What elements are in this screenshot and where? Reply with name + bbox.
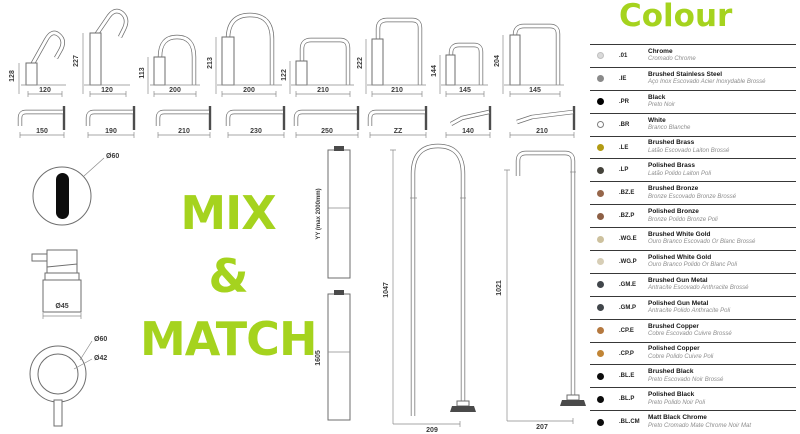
colour-finish-list: .01 Chrome Cromado Chrome .IE Brushed St… <box>590 44 796 433</box>
finish-subname: Cobre Polido Cuivre Poli <box>648 354 796 362</box>
finish-names: Polished Black Preto Polido Noir Poli <box>648 391 796 407</box>
finish-name: Brushed Bronze <box>648 185 796 193</box>
width-dim-label: 250 <box>321 128 333 135</box>
column-width-label: 209 <box>426 427 438 434</box>
finish-subname: Preto Cromado Mate Chrome Noir Mat <box>648 423 796 431</box>
riser-drawing <box>328 290 350 420</box>
width-dim-label: 120 <box>101 87 113 94</box>
wall-spout-fig-6: ZZ <box>362 104 430 140</box>
diameter-label: Ø60 <box>106 153 119 160</box>
finish-names: Polished Brass Latão Polido Laiton Poli <box>648 162 796 178</box>
spout-drawing <box>216 15 282 97</box>
sensor-slot <box>56 173 69 219</box>
finish-subname: Bronze Escovado Bronze Brossé <box>648 194 796 202</box>
finish-code: .WG.P <box>619 259 648 265</box>
column-width-label: 207 <box>536 424 548 431</box>
finish-name: Brushed Black <box>648 368 796 376</box>
colour-finish-row: .CP.E Brushed Copper Cobre Escovado Cuiv… <box>590 319 796 342</box>
colour-finish-row: .PR Black Preto Noir <box>590 90 796 113</box>
headline-line-3: MATCH <box>140 308 316 371</box>
width-dim-label: 210 <box>391 87 403 94</box>
colour-finish-row: .BR White Branco Blanche <box>590 113 796 136</box>
colour-finish-row: .BL.E Brushed Black Preto Escovado Noir … <box>590 364 796 387</box>
width-dim-label: 140 <box>462 128 474 135</box>
colour-finish-row: .IE Brushed Stainless Steel Aço Inox Esc… <box>590 67 796 90</box>
width-dim-label: ZZ <box>394 128 403 135</box>
width-dim-label: 230 <box>250 128 262 135</box>
finish-names: Brushed Black Preto Escovado Noir Brossé <box>648 368 796 384</box>
finish-code: .BL.E <box>619 373 648 379</box>
finish-names: Brushed Stainless Steel Aço Inox Escovad… <box>648 71 796 87</box>
finish-names: Brushed Gun Metal Antracite Escovado Ant… <box>648 277 796 293</box>
finish-names: Brushed Copper Cobre Escovado Cuivre Bro… <box>648 323 796 339</box>
finish-subname: Cromado Chrome <box>648 56 796 64</box>
finish-subname: Antracite Polido Anthracite Poli <box>648 308 796 316</box>
finish-names: Polished White Gold Ouro Branco Polido O… <box>648 254 796 270</box>
colour-finish-row: .WG.E Brushed White Gold Ouro Branco Esc… <box>590 227 796 250</box>
column-height-label: 1047 <box>383 282 390 298</box>
colour-finish-row: .BZ.E Brushed Bronze Bronze Escovado Bro… <box>590 181 796 204</box>
finish-subname: Ouro Branco Escovado Or Blanc Brossé <box>648 239 796 247</box>
inner-diameter-label: Ø42 <box>94 355 107 362</box>
finish-swatch-dot <box>597 75 604 82</box>
riser-drawing <box>328 146 350 278</box>
finish-swatch-dot <box>597 327 604 334</box>
finish-code: .LP <box>619 167 648 173</box>
finish-swatch-dot <box>597 98 604 105</box>
finish-name: Brushed Copper <box>648 323 796 331</box>
colour-panel: Colour .01 Chrome Cromado Chrome .IE Bru… <box>590 0 800 434</box>
finish-code: .GM.P <box>619 305 648 311</box>
riser-height-label: 1605 <box>315 350 322 366</box>
spout-fig-1: 128 120 <box>8 7 70 99</box>
finish-name: Polished White Gold <box>648 254 796 262</box>
mix-match-headline: MIX & MATCH <box>140 182 316 371</box>
diameter-label: Ø45 <box>55 303 68 310</box>
finish-code: .CP.E <box>619 328 648 334</box>
height-dim-label: 128 <box>9 70 16 82</box>
colour-finish-row: .WG.P Polished White Gold Ouro Branco Po… <box>590 250 796 273</box>
spout-fig-2: 227 120 <box>76 7 140 99</box>
finish-code: .PR <box>619 99 648 105</box>
height-dim-label: 144 <box>431 65 438 77</box>
sensor-drawing <box>33 158 104 225</box>
wall-spout-fig-4: 230 <box>220 104 288 140</box>
finish-swatch-dot <box>597 350 604 357</box>
finish-names: White Branco Blanche <box>648 117 796 133</box>
colour-finish-row: .LP Polished Brass Latão Polido Laiton P… <box>590 158 796 181</box>
finish-name: Polished Bronze <box>648 208 796 216</box>
finish-code: .CP.P <box>619 351 648 357</box>
colour-finish-row: .GM.P Polished Gun Metal Antracite Polid… <box>590 296 796 319</box>
wall-spout-fig-5: 250 <box>288 104 362 140</box>
height-dim-label: 122 <box>281 69 288 81</box>
width-dim-label: 200 <box>169 87 181 94</box>
finish-code: .01 <box>619 53 648 59</box>
width-dim-label: 210 <box>317 87 329 94</box>
finish-names: Chrome Cromado Chrome <box>648 48 796 64</box>
colour-finish-row: .CP.P Polished Copper Cobre Polido Cuivr… <box>590 342 796 365</box>
width-dim-label: 145 <box>459 87 471 94</box>
finish-name: Brushed Brass <box>648 139 796 147</box>
width-dim-label: 210 <box>536 128 548 135</box>
height-dim-label: 204 <box>494 55 501 67</box>
finish-subname: Preto Noir <box>648 102 796 110</box>
width-dim-label: 200 <box>243 87 255 94</box>
finish-code: .LE <box>619 145 648 151</box>
finish-name: Matt Black Chrome <box>648 414 796 422</box>
finish-code: .BZ.E <box>619 190 648 196</box>
spout-fig-5: 122 210 <box>288 7 354 99</box>
colour-finish-row: .LE Brushed Brass Latão Escovado Laiton … <box>590 136 796 159</box>
spout-fig-3: 113 200 <box>146 7 204 99</box>
finish-code: .WG.E <box>619 236 648 242</box>
finish-swatch-dot <box>597 121 604 128</box>
finish-name: Chrome <box>648 48 796 56</box>
finish-swatch-dot <box>597 281 604 288</box>
finish-code: .GM.E <box>619 282 648 288</box>
finish-subname: Latão Escovado Laiton Brossé <box>648 148 796 156</box>
catalog-page: 128 120 227 120 113 200 213 200 <box>0 0 800 434</box>
finish-code: .BL.P <box>619 396 648 402</box>
finish-name: Polished Gun Metal <box>648 300 796 308</box>
colour-finish-row: .GM.E Brushed Gun Metal Antracite Escova… <box>590 273 796 296</box>
finish-subname: Aço Inox Escovado Acier Inoxydable Bross… <box>648 79 796 87</box>
floor-column-1-fig: 1047 209 <box>380 140 476 434</box>
joystick-mixer-fig: Ø45 <box>28 246 112 320</box>
finish-subname: Bronze Polido Bronze Poli <box>648 217 796 225</box>
finish-name: Polished Copper <box>648 345 796 353</box>
colour-finish-row: .BL.CM Matt Black Chrome Preto Cromado M… <box>590 410 796 433</box>
wall-spout-fig-1: 150 <box>12 104 68 140</box>
width-dim-label: 150 <box>36 128 48 135</box>
outer-diameter-label: Ø60 <box>94 336 107 343</box>
height-dim-label: 222 <box>357 57 364 69</box>
height-dim-label: 227 <box>73 55 80 67</box>
finish-name: Brushed Stainless Steel <box>648 71 796 79</box>
finish-subname: Branco Blanche <box>648 125 796 133</box>
height-dim-label: 113 <box>139 67 146 78</box>
spout-fig-8: 204 145 <box>500 7 566 99</box>
finish-swatch-dot <box>597 373 604 380</box>
finish-swatch-dot <box>597 419 604 426</box>
finish-swatch-dot <box>597 167 604 174</box>
width-dim-label: 120 <box>39 87 51 94</box>
finish-names: Polished Copper Cobre Polido Cuivre Poli <box>648 345 796 361</box>
wall-spout-fig-3: 210 <box>150 104 214 140</box>
finish-swatch-dot <box>597 396 604 403</box>
finish-subname: Antracite Escovado Anthracite Brossé <box>648 285 796 293</box>
column-drawing <box>504 153 586 424</box>
finish-names: Matt Black Chrome Preto Cromado Mate Chr… <box>648 414 796 430</box>
finish-swatch-dot <box>597 258 604 265</box>
finish-names: Brushed Brass Latão Escovado Laiton Bros… <box>648 139 796 155</box>
height-dim-label: 213 <box>207 57 214 69</box>
finish-names: Black Preto Noir <box>648 94 796 110</box>
finish-code: .IE <box>619 76 648 82</box>
finish-name: Polished Brass <box>648 162 796 170</box>
finish-subname: Latão Polido Laiton Poli <box>648 171 796 179</box>
finish-name: White <box>648 117 796 125</box>
spout-drawing <box>366 20 426 97</box>
finish-name: Black <box>648 94 796 102</box>
floor-column-2-fig: 1021 207 <box>488 140 588 432</box>
finish-names: Brushed Bronze Bronze Escovado Bronze Br… <box>648 185 796 201</box>
finish-subname: Ouro Branco Polido Or Blanc Poli <box>648 262 796 270</box>
finish-subname: Preto Polido Noir Poli <box>648 400 796 408</box>
width-dim-label: 145 <box>529 87 541 94</box>
finish-swatch-dot <box>597 236 604 243</box>
finish-swatch-dot <box>597 304 604 311</box>
width-dim-label: 190 <box>105 128 117 135</box>
riser-height-label: YY (max 2000mm) <box>316 188 322 239</box>
colour-finish-row: .BL.P Polished Black Preto Polido Noir P… <box>590 387 796 410</box>
finish-code: .BR <box>619 122 648 128</box>
spout-fig-7: 144 145 <box>438 7 494 99</box>
finish-name: Polished Black <box>648 391 796 399</box>
finish-swatch-dot <box>597 190 604 197</box>
finish-names: Polished Bronze Bronze Polido Bronze Pol… <box>648 208 796 224</box>
headline-line-1: MIX <box>140 182 316 245</box>
finish-swatch-dot <box>597 144 604 151</box>
finish-code: .BL.CM <box>619 419 648 425</box>
wall-spout-fig-2: 190 <box>80 104 138 140</box>
finish-code: .BZ.P <box>619 213 648 219</box>
finish-swatch-dot <box>597 213 604 220</box>
spout-fig-4: 213 200 <box>214 7 286 99</box>
spout-drawing <box>83 11 130 97</box>
finish-subname: Cobre Escovado Cuivre Brossé <box>648 331 796 339</box>
finish-names: Polished Gun Metal Antracite Polido Anth… <box>648 300 796 316</box>
width-dim-label: 210 <box>178 128 190 135</box>
handle-control-fig: Ø60 Ø42 <box>28 328 132 432</box>
finish-name: Brushed Gun Metal <box>648 277 796 285</box>
column-height-label: 1021 <box>496 280 503 296</box>
colour-panel-title: Colour <box>619 0 732 34</box>
wall-spout-fig-8: 210 <box>502 104 578 140</box>
colour-finish-row: .01 Chrome Cromado Chrome <box>590 44 796 67</box>
riser-bar-2-fig: 1605 <box>312 286 360 426</box>
finish-name: Brushed White Gold <box>648 231 796 239</box>
headline-line-2: & <box>140 245 316 308</box>
finish-names: Brushed White Gold Ouro Branco Escovado … <box>648 231 796 247</box>
colour-finish-row: .BZ.P Polished Bronze Bronze Polido Bron… <box>590 204 796 227</box>
handle-drawing <box>30 341 92 426</box>
finish-swatch-dot <box>597 52 604 59</box>
wall-spout-fig-7: 140 <box>440 104 494 140</box>
riser-bar-1-fig: YY (max 2000mm) <box>312 144 360 284</box>
finish-subname: Preto Escovado Noir Brossé <box>648 377 796 385</box>
sensor-tap-fig: Ø60 <box>26 148 130 240</box>
column-drawing <box>390 146 476 427</box>
spout-fig-6: 222 210 <box>364 7 426 99</box>
